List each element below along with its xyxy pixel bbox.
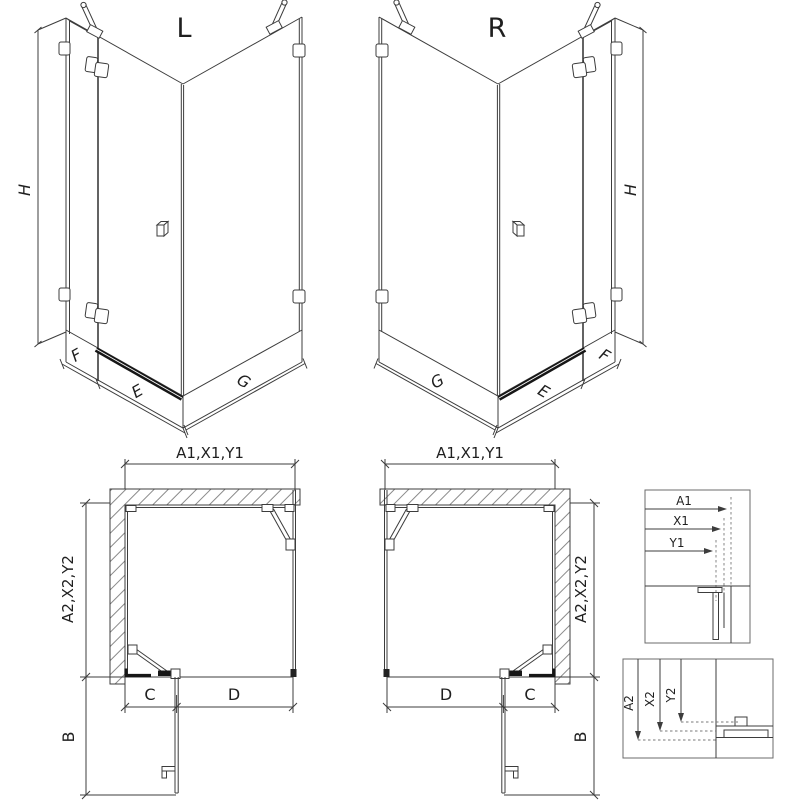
- legend-a1: A1: [676, 494, 692, 508]
- iso-view-right: [374, 0, 647, 438]
- iso-right-dim-f: F: [596, 345, 614, 366]
- iso-left-dim-h: H: [15, 184, 34, 196]
- legend-a2: A2: [622, 695, 636, 711]
- iso-right-geometry: [374, 0, 647, 438]
- legend-y2: Y2: [664, 688, 678, 704]
- plan-left-dim-depth: A2,X2,Y2: [59, 555, 77, 623]
- legend-x1: X1: [673, 514, 689, 528]
- iso-left-geometry: [35, 0, 308, 438]
- wall-profile-section: [698, 586, 731, 643]
- variant-label-left: L: [176, 13, 191, 44]
- plan-left-dim-d: D: [228, 685, 240, 704]
- legend-width-box: [645, 490, 750, 643]
- plan-right-dim-c: C: [524, 685, 535, 704]
- iso-view-left: [35, 0, 308, 438]
- tray-profile-section: [716, 717, 773, 738]
- plan-right-dim-d: D: [440, 685, 452, 704]
- plan-right-dim-b: B: [571, 732, 590, 743]
- iso-right-dim-e: E: [535, 380, 554, 402]
- plan-right-dim-width: A1,X1,Y1: [436, 444, 504, 462]
- drawing-canvas: L H F E G R H F E G A1,X1,Y1 A2,X2,Y2 C …: [0, 0, 800, 800]
- plan-left-dim-width: A1,X1,Y1: [176, 444, 244, 462]
- shower-enclosure-technical-drawing: L H F E G R H F E G A1,X1,Y1 A2,X2,Y2 C …: [0, 0, 800, 800]
- legend-y1: Y1: [669, 536, 685, 550]
- legend-x2: X2: [643, 691, 657, 707]
- legend-depth-box: [623, 659, 773, 758]
- plan-left-dim-b: B: [59, 732, 78, 743]
- iso-left-dim-g: G: [234, 370, 254, 393]
- plan-right-dim-depth: A2,X2,Y2: [572, 555, 590, 623]
- iso-left-dim-f: F: [68, 344, 86, 365]
- iso-right-dim-h: H: [621, 184, 640, 196]
- plan-left-dim-c: C: [144, 685, 155, 704]
- variant-label-right: R: [488, 13, 507, 44]
- iso-right-dim-g: G: [427, 370, 447, 393]
